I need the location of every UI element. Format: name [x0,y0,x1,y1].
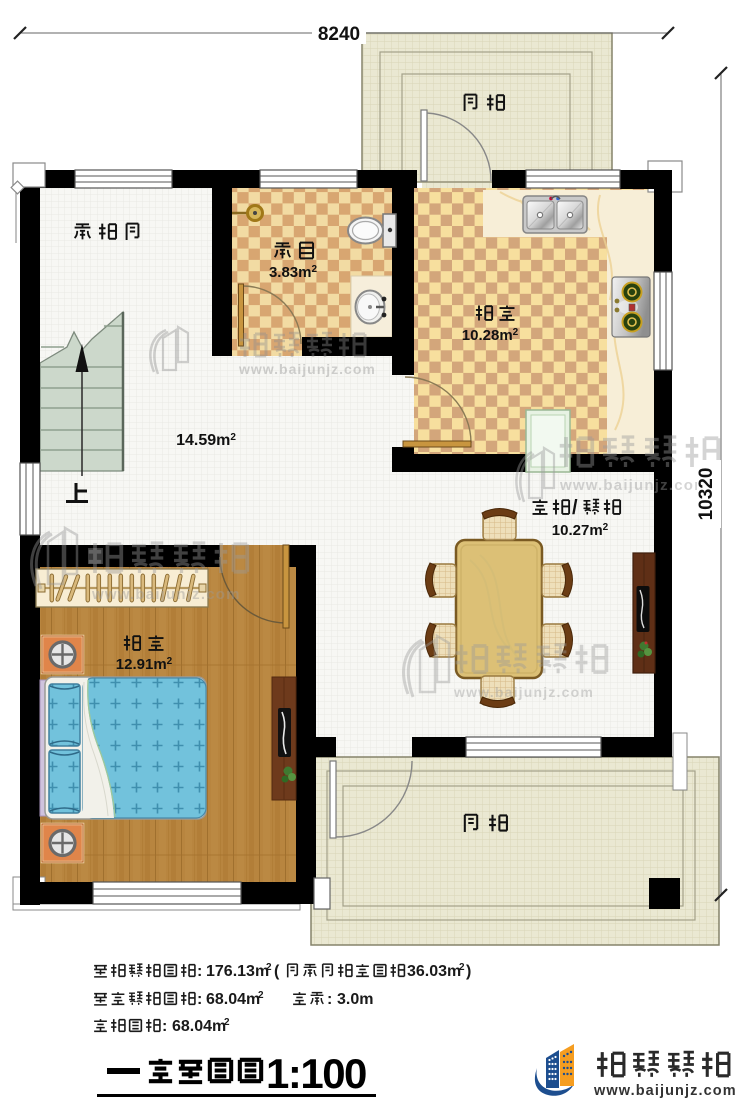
svg-text:3.83m2: 3.83m2 [269,264,318,281]
svg-text:2: 2 [258,990,264,1001]
svg-text:www.baijunjz.com: www.baijunjz.com [238,361,376,377]
svg-text::: : [197,991,202,1008]
svg-text:/: / [572,497,578,519]
svg-text:): ) [466,963,471,980]
svg-text:68.04m: 68.04m [206,991,260,1008]
svg-text:8240: 8240 [318,24,360,45]
svg-text:68.04m: 68.04m [172,1018,226,1035]
svg-text:www.baijunjz.com: www.baijunjz.com [453,684,594,700]
svg-text:2: 2 [224,1017,230,1028]
svg-text:10.27m2: 10.27m2 [552,522,609,539]
svg-text:www.baijunjz.com: www.baijunjz.com [559,477,709,494]
svg-text:2: 2 [459,962,465,973]
svg-text::: : [327,991,332,1008]
svg-text:176.13m: 176.13m [206,963,269,980]
svg-text:12.91m2: 12.91m2 [116,656,173,673]
svg-text:10320: 10320 [696,468,717,521]
svg-text:1:100: 1:100 [266,1050,366,1097]
svg-text:14.59m2: 14.59m2 [176,432,236,449]
svg-text:36.03m: 36.03m [407,963,461,980]
svg-text:www.baijunjz.com: www.baijunjz.com [91,586,241,603]
svg-text:(: ( [274,963,280,980]
svg-text:3.0m: 3.0m [337,991,373,1008]
svg-text:10.28m2: 10.28m2 [462,327,519,344]
svg-text::: : [197,963,202,980]
svg-text:www.baijunjz.com: www.baijunjz.com [593,1083,737,1099]
svg-text:2: 2 [266,962,272,973]
svg-text::: : [162,1018,167,1035]
